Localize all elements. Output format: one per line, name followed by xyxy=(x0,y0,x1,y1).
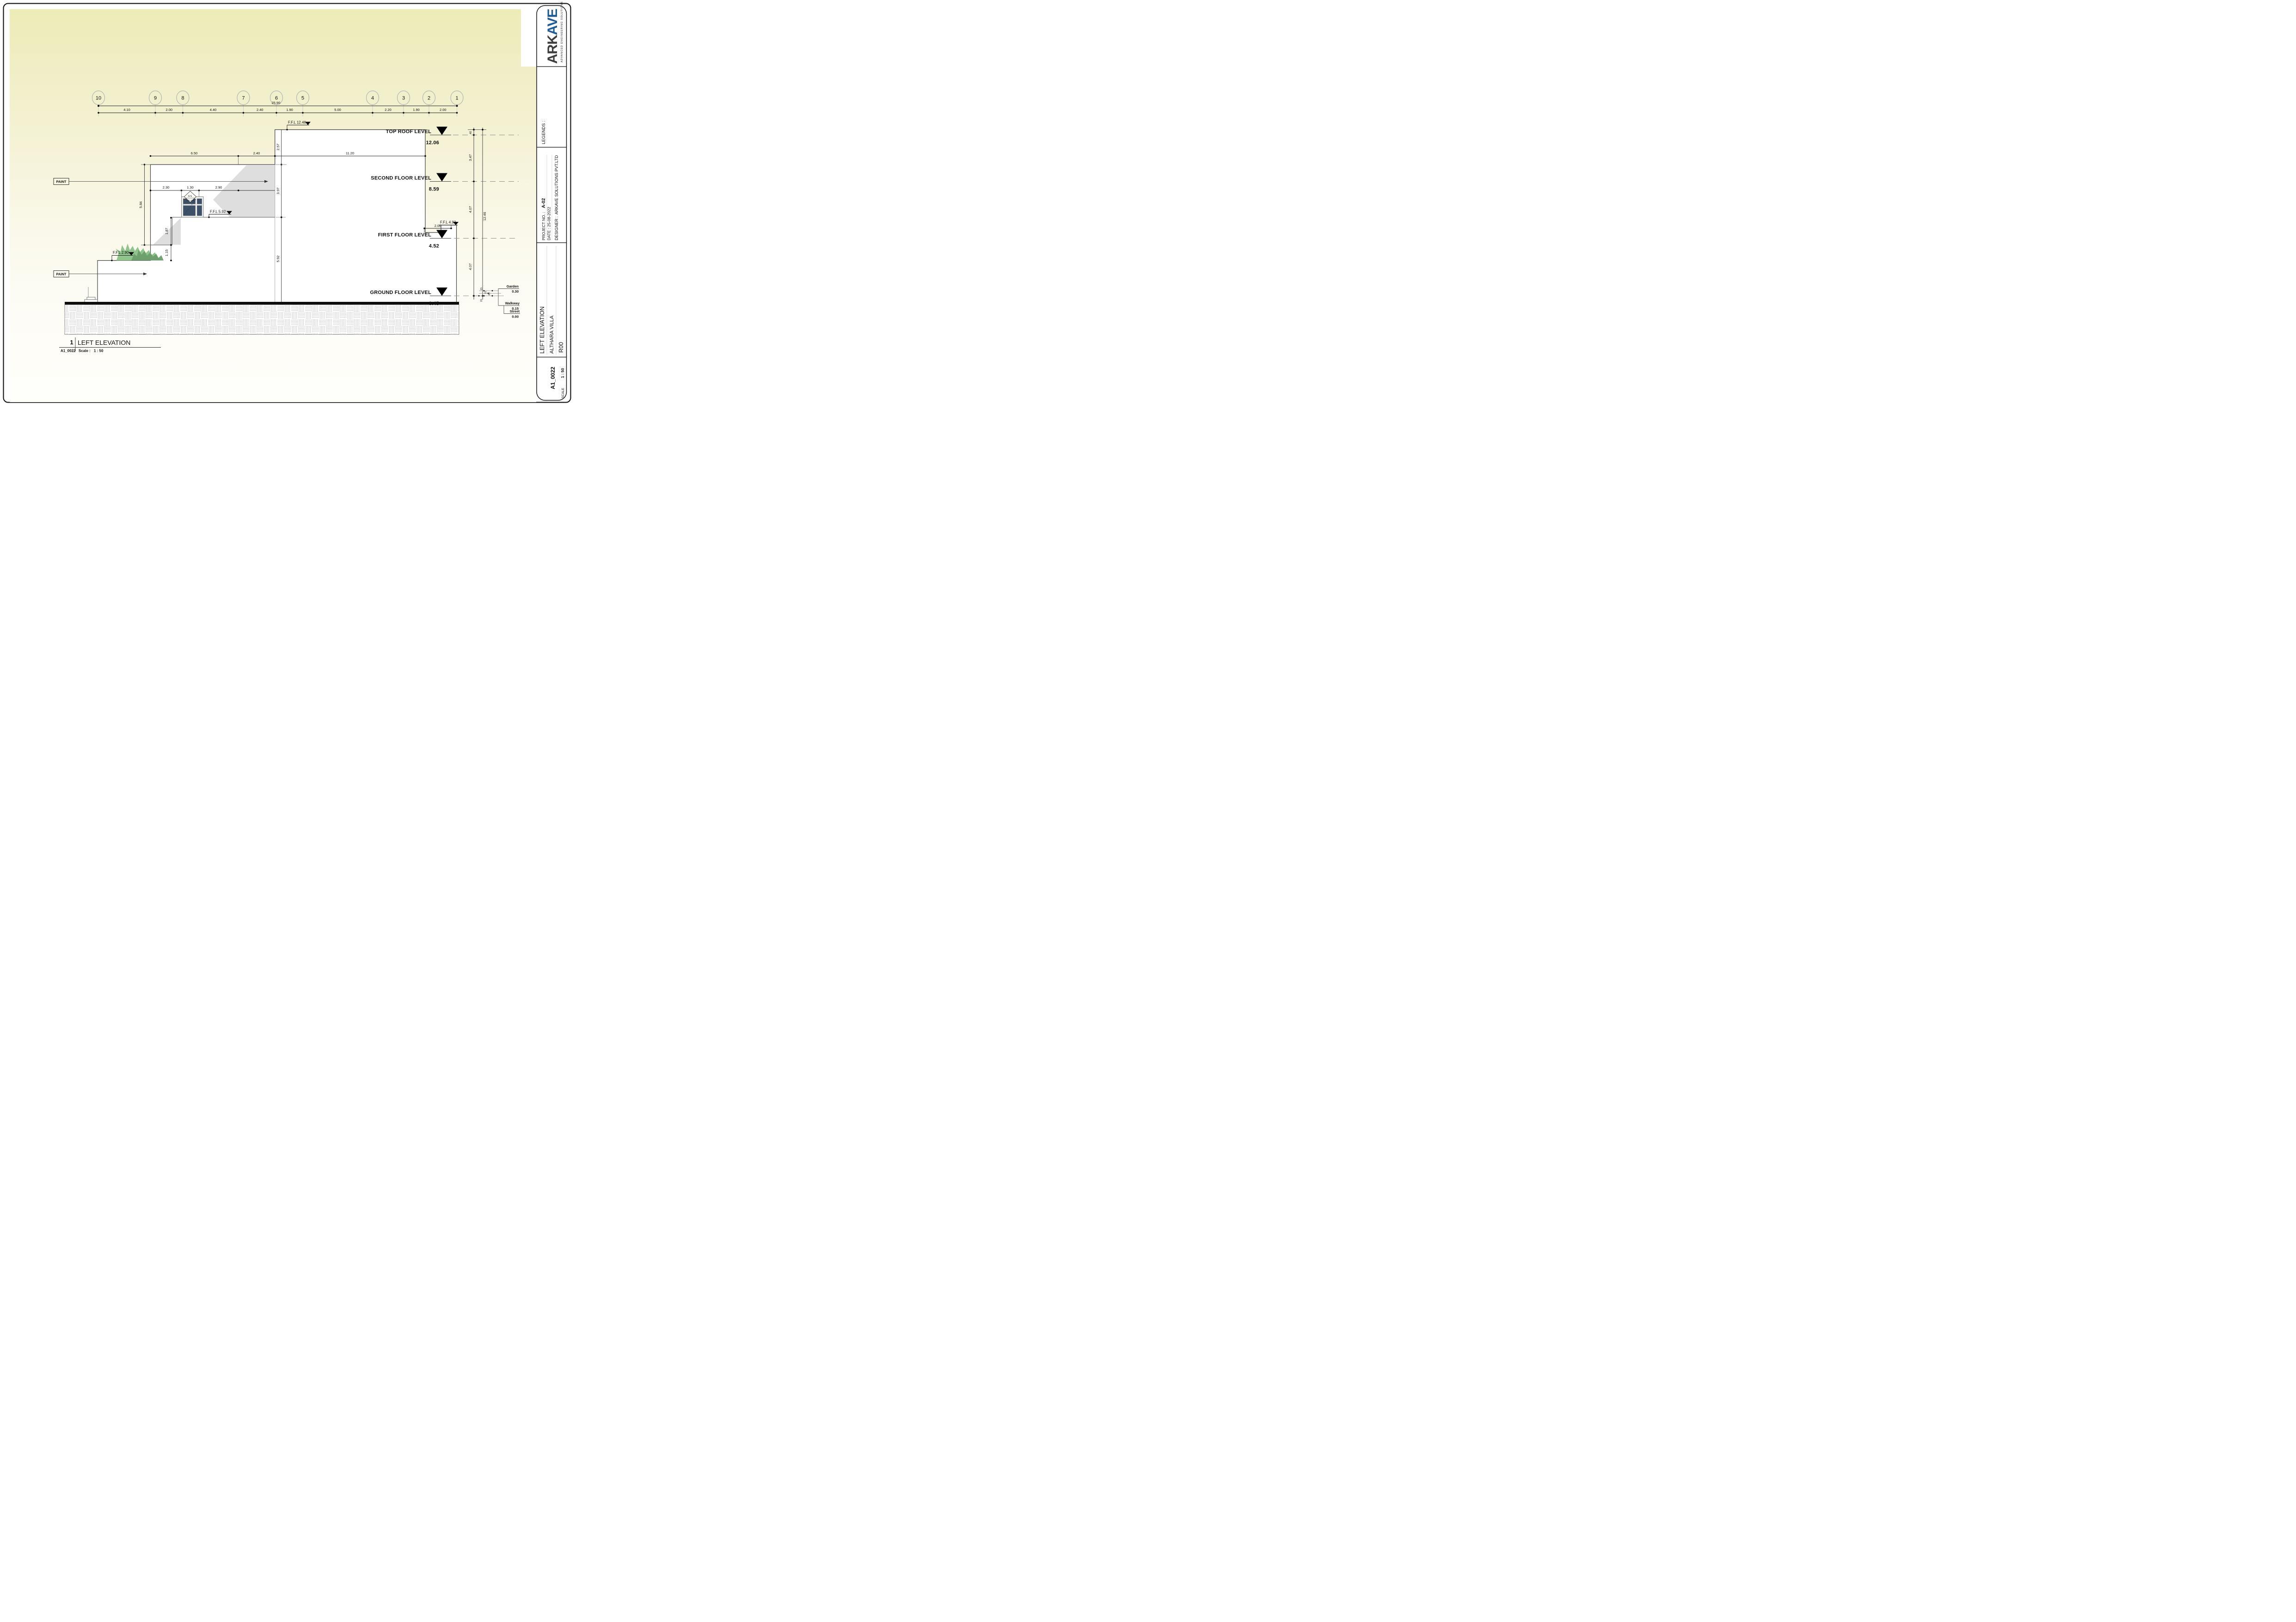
sheet-revision: R00 xyxy=(558,342,564,353)
view-scale-label: Scale : xyxy=(79,349,91,353)
dim-first-to-ground: 4.07 xyxy=(468,263,472,270)
dim-total: 25.90 xyxy=(272,101,281,105)
dim-core-top: 2.57 xyxy=(276,144,280,151)
grid-label: 2 xyxy=(428,96,430,101)
site-level-name: Walkway xyxy=(505,301,520,306)
view-sheet-ref: A1_0022 xyxy=(61,349,76,353)
dim-core-bottom: 5.92 xyxy=(276,256,280,263)
sheet-project-name: ALTHARA VILLA xyxy=(549,315,555,354)
site-level-value: 0.30 xyxy=(512,289,519,294)
level-value: 4.52 xyxy=(429,244,439,249)
grid-label: 1 xyxy=(455,96,458,101)
svg-text:DESIGNER :ARKAVE SOLUTIONS PVT: DESIGNER :ARKAVE SOLUTIONS PVT.LTD xyxy=(554,155,559,240)
dim-door-left: 2.30 xyxy=(163,185,170,190)
dim-segment: 4.10 xyxy=(123,108,130,112)
view-title-text: LEFT ELEVATION xyxy=(78,339,130,346)
ground-hatch xyxy=(65,305,459,335)
dim-segment: 2.00 xyxy=(440,108,447,112)
grid-label: 10 xyxy=(96,96,101,101)
grid-label: 7 xyxy=(242,96,245,101)
dim-segment: 1.90 xyxy=(286,108,293,112)
dim-segment: 1.90 xyxy=(413,108,420,112)
dim-door-right: 2.90 xyxy=(215,185,222,190)
sheet-number: A1_0022 xyxy=(550,367,556,389)
level-value: 12.06 xyxy=(426,140,439,146)
dim-site: 15 xyxy=(484,291,487,294)
drawing-sheet: 10 9 8 7 6 5 4 3 2 1 25.90 4.10 xyxy=(0,0,574,406)
project-no-value: A-02 xyxy=(541,198,546,208)
level-value: 8.59 xyxy=(429,187,439,192)
grid-label: 3 xyxy=(402,96,405,101)
grid-label: 8 xyxy=(181,96,184,101)
dim-roof-to-second: 3.47 xyxy=(468,154,472,161)
dim-segment: 5.00 xyxy=(334,108,341,112)
designer-label: DESIGNER : xyxy=(554,216,559,240)
sheet-scale-label: SCALE xyxy=(562,388,565,398)
dim-overall-height: 12.46 xyxy=(483,212,487,221)
ffl-label: F.F.L 2.90 xyxy=(113,251,129,255)
sheet-scale-value: 1 : 50 xyxy=(560,368,565,378)
dim-door-width: 1.30 xyxy=(187,185,194,190)
view-number: 1 xyxy=(70,339,73,346)
level-name: GROUND FLOOR LEVEL xyxy=(370,290,431,295)
dim-segment: 4.40 xyxy=(210,108,217,112)
dim-roof-left: 6.50 xyxy=(191,151,198,155)
designer-value: ARKAVE SOLUTIONS PVT.LTD xyxy=(554,155,559,214)
sheet-drawing-title: LEFT ELEVATION xyxy=(539,306,545,354)
grid-label: 5 xyxy=(301,96,304,101)
site-level-name: Street xyxy=(510,309,520,313)
dim-roof-left2: 2.40 xyxy=(253,151,260,155)
dim-parapet: 40 xyxy=(470,131,472,134)
dim-left-height: 5.84 xyxy=(139,202,143,208)
ground-line xyxy=(65,302,459,305)
ground xyxy=(65,302,459,335)
site-level-value: 0.00 xyxy=(512,315,519,319)
level-name: FIRST FLOOR LEVEL xyxy=(378,233,431,238)
site-level-name: Garden xyxy=(507,284,519,288)
dim-ledge-offset: 2.00 xyxy=(435,224,441,228)
level-value: 0.45 xyxy=(429,301,439,306)
dim-step-height: 1.87 xyxy=(165,228,169,235)
level-name: TOP ROOF LEVEL xyxy=(386,129,431,135)
dim-planter-height: 1.15 xyxy=(165,250,169,257)
dim-site: 15 xyxy=(480,299,483,302)
svg-text:PROJECT NO. :A-02: PROJECT NO. :A-02 xyxy=(541,198,546,240)
dim-site: 45 xyxy=(488,293,491,295)
grid-label: 9 xyxy=(154,96,157,101)
grid-label: 4 xyxy=(371,96,374,101)
ffl-label: F.F.L 5.92 xyxy=(210,210,226,214)
logo-prefix: ARK xyxy=(545,35,560,64)
logo-tagline: ADVANCED ENGINEERING SOLUTIONS xyxy=(561,1,563,62)
ffl-label: F.F.L 12.46 xyxy=(288,121,306,125)
paint-label: PAINT xyxy=(56,180,67,184)
svg-text:ARKAVE: ARKAVE xyxy=(545,9,560,64)
dim-core-mid: 3.97 xyxy=(276,188,280,195)
dim-roof-main: 11.20 xyxy=(346,151,354,155)
title-block: ARKAVE ADVANCED ENGINEERING SOLUTIONS LE… xyxy=(537,1,567,400)
level-name: SECOND FLOOR LEVEL xyxy=(371,176,431,181)
company-logo: ARKAVE ADVANCED ENGINEERING SOLUTIONS xyxy=(545,1,563,64)
view-scale-value: 1 : 50 xyxy=(94,349,104,353)
grid-label: 6 xyxy=(275,96,278,101)
project-date: DATE : 25-08-2022 xyxy=(547,207,551,240)
dim-second-to-first: 4.07 xyxy=(468,206,472,213)
dim-segment: 2.20 xyxy=(385,108,392,112)
dim-site: 15 xyxy=(480,288,483,290)
paint-label: PAINT xyxy=(56,272,67,276)
project-no-label: PROJECT NO. : xyxy=(541,212,546,240)
door-tag: GS xyxy=(188,195,192,198)
dim-segment: 2.00 xyxy=(165,108,172,112)
dim-segment: 2.40 xyxy=(257,108,263,112)
logo-suffix: AVE xyxy=(545,9,560,35)
door-size: 1.30 x 3.00 xyxy=(186,200,194,202)
legends-label: LEGENDS : xyxy=(541,121,546,144)
